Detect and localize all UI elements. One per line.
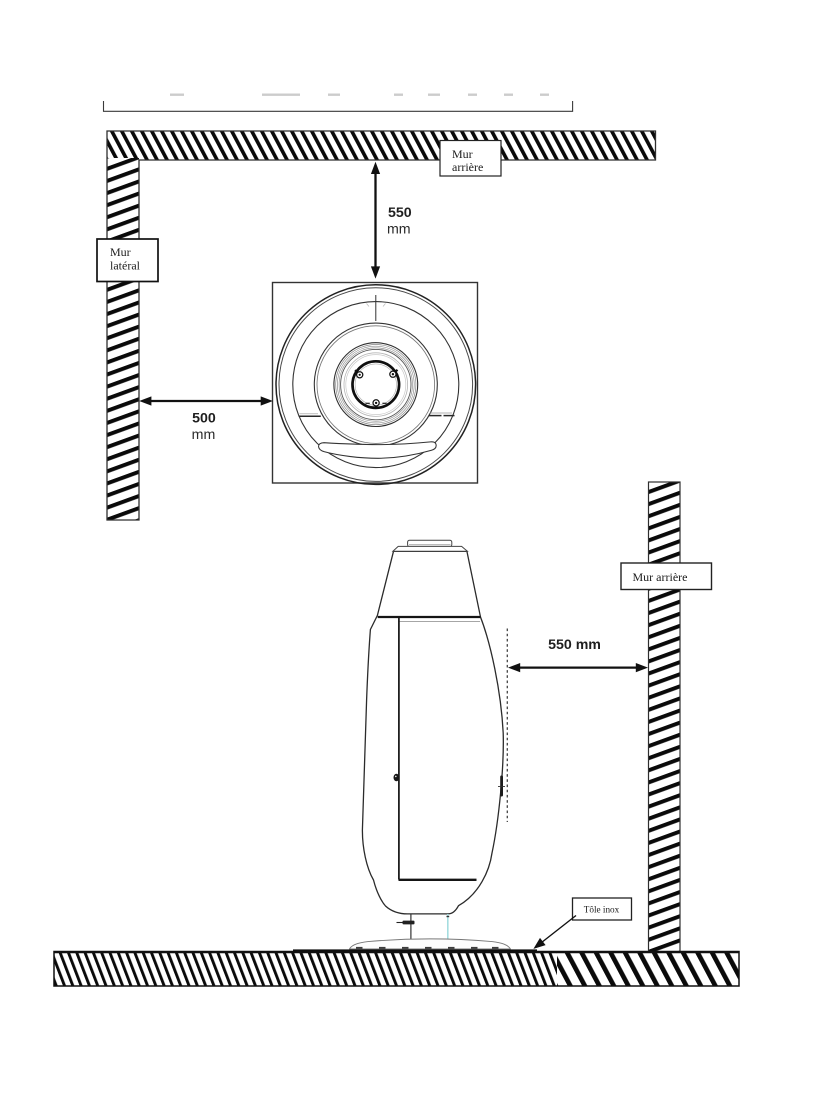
svg-text:Tôle inox: Tôle inox: [584, 904, 620, 914]
svg-text:mm: mm: [387, 222, 411, 238]
svg-text:Mur: Mur: [110, 245, 131, 259]
svg-text:550: 550: [388, 205, 412, 221]
svg-text:500: 500: [192, 411, 216, 427]
svg-text:arrière: arrière: [452, 160, 483, 174]
svg-text:mm: mm: [192, 427, 216, 443]
svg-text:550 mm: 550 mm: [548, 637, 601, 653]
svg-text:latéral: latéral: [110, 259, 141, 273]
svg-text:Mur: Mur: [452, 147, 473, 161]
svg-text:Mur arrière: Mur arrière: [633, 570, 688, 584]
